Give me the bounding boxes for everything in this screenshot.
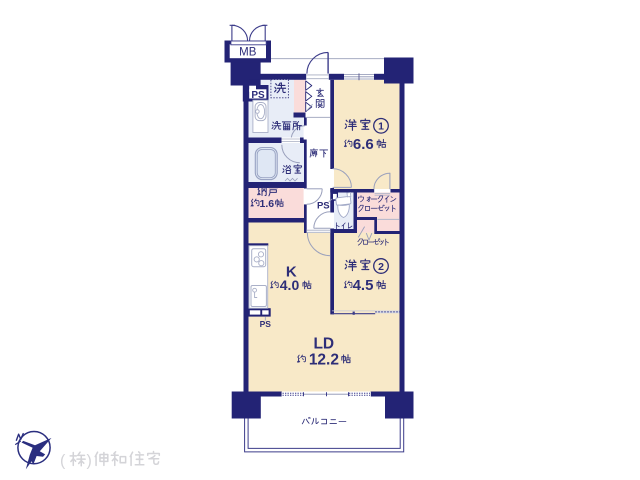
svg-text:1: 1: [378, 121, 384, 133]
svg-text:MB: MB: [239, 47, 257, 59]
svg-text:2: 2: [378, 261, 384, 273]
svg-text:(: (: [60, 452, 66, 469]
svg-text:4.0: 4.0: [280, 277, 300, 293]
svg-text:12.2: 12.2: [309, 352, 339, 369]
svg-text:PS: PS: [317, 201, 330, 212]
svg-text:4.5: 4.5: [353, 277, 374, 294]
svg-text:): ): [87, 452, 92, 469]
svg-text:PS: PS: [251, 90, 265, 101]
svg-text:6.6: 6.6: [353, 136, 374, 153]
svg-text:LD: LD: [313, 335, 334, 352]
svg-text:1.6: 1.6: [259, 198, 274, 210]
